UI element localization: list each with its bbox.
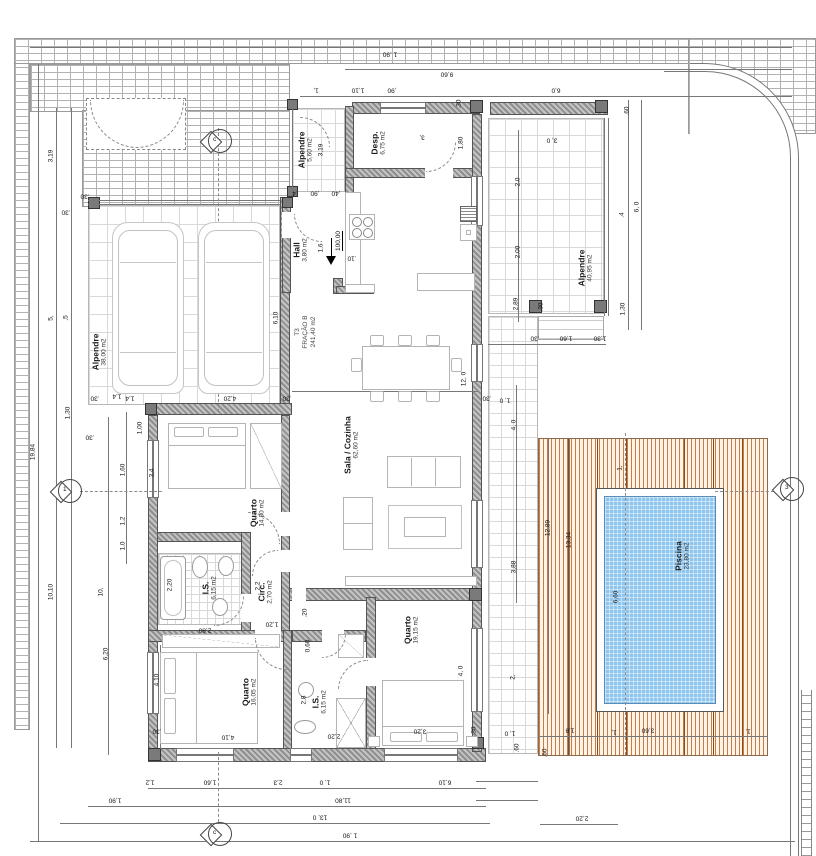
- dimension-label: .60: [514, 743, 521, 752]
- fraction-type: T3: [294, 315, 302, 348]
- dimension-label: .60: [624, 106, 631, 115]
- dimension-label: 13,34: [566, 532, 573, 548]
- room-area: 3,80 m2: [302, 238, 310, 262]
- dimension-label: 2,20: [167, 579, 174, 592]
- dimension-label: .20: [302, 608, 309, 617]
- boundary-brick-left: [14, 38, 30, 730]
- wall-pantry-bottom: [345, 168, 480, 178]
- dimension-label: 1,30: [594, 335, 607, 342]
- walkway-tiles: [488, 316, 538, 754]
- dimension-label: 1,: [617, 465, 624, 470]
- dining-chair: [426, 391, 440, 402]
- dimension-label: 0,60: [305, 640, 312, 653]
- dimension-label: 1,: [745, 728, 750, 735]
- room-name: Alpendre: [92, 334, 101, 371]
- room-name: Circ.: [258, 580, 267, 604]
- garage-open-edge: [88, 200, 280, 201]
- dimension-label: 2,20: [576, 815, 589, 822]
- dimension-label: 2,3: [273, 779, 282, 786]
- kitchen-island: [417, 273, 475, 291]
- room-label: I.S.6,15 m2: [312, 690, 329, 714]
- sofa-cushion-line: [435, 458, 436, 486]
- dimension-line: [30, 47, 792, 48]
- bed-fold-line: [196, 652, 197, 744]
- kitchen-counter-end: [345, 284, 375, 293]
- dining-chair: [370, 391, 384, 402]
- car-windshield-line: [206, 262, 262, 263]
- room-area: 2,70 m2: [267, 580, 275, 604]
- dimension-line: [641, 100, 642, 330]
- door-arc: [338, 660, 368, 690]
- section-marker-circle: [208, 822, 232, 846]
- dimension-label: 1,20: [266, 621, 279, 628]
- dimension-line: [38, 64, 39, 841]
- dimension-label: 4,20: [224, 395, 237, 402]
- room-label: Hall3,80 m2: [293, 238, 310, 262]
- dimension-label: .30: [90, 395, 99, 402]
- dimension-label: 4,10: [154, 674, 161, 687]
- dimension-label: ,90: [387, 87, 396, 94]
- boundary-hatch-right: [801, 690, 812, 856]
- section-marker: 1: [55, 479, 81, 505]
- car-rear-line: [120, 352, 176, 353]
- dimension-label: 2,0: [515, 177, 522, 186]
- room-area: 40,95 m2: [587, 250, 595, 287]
- dimension-label: 3,: [419, 134, 424, 141]
- dimension-label: 1,00: [137, 422, 144, 435]
- dining-chair: [398, 335, 412, 346]
- dimension-label: 2,20: [328, 733, 341, 740]
- dimension-label: 3,88: [511, 561, 518, 574]
- door-gap-bedroom1: [281, 512, 290, 536]
- porch-east-edge: [608, 118, 609, 316]
- room-label: Piscina23,80 m2: [675, 541, 692, 571]
- room-area: 6,15 m2: [321, 690, 329, 714]
- dimension-label: 1,2: [120, 516, 127, 525]
- dimension-label: 3, 0: [547, 137, 558, 144]
- dimension-label: 6,10: [273, 312, 280, 325]
- room-name: Quarto: [404, 616, 413, 644]
- dimension-label: 1, 0: [320, 779, 331, 786]
- room-area: 14,80 m2: [259, 499, 267, 527]
- sofa-cushion-line: [411, 458, 412, 486]
- nightstand: [368, 736, 380, 747]
- dimension-label: 2,89: [513, 298, 520, 311]
- dimension-label: ,40: [331, 190, 340, 197]
- dining-chair: [370, 335, 384, 346]
- section-marker-circle: [780, 477, 804, 501]
- stove-burner: [352, 228, 362, 238]
- fraction-label: T3 FRAÇÃO B 241,40 m2: [294, 315, 318, 348]
- sink: [192, 556, 208, 578]
- door-arc: [252, 550, 278, 576]
- room-name: Alpendre: [578, 250, 587, 287]
- window-bedroom3-south: [384, 748, 458, 762]
- dimension-line: [548, 438, 549, 714]
- dimension-label: 1,60: [560, 335, 573, 342]
- room-area: 5,60 m2: [307, 132, 315, 169]
- door-arc: [255, 638, 287, 670]
- fraction-name: FRAÇÃO B: [302, 315, 310, 348]
- dimension-line: [60, 823, 490, 824]
- section-marker-circle: [208, 129, 232, 153]
- dimension-label: 1 ,90: [383, 51, 397, 58]
- dimension-label: .30: [152, 728, 161, 735]
- kitchen-counter: [345, 192, 361, 288]
- dining-table: [362, 346, 450, 390]
- section-marker: c: [205, 129, 231, 155]
- car-windshield-line: [120, 262, 176, 263]
- dimension-label: 6,0: [551, 87, 560, 94]
- room-area: 62,60 m2: [353, 416, 361, 474]
- pillow: [426, 732, 458, 742]
- column: [594, 300, 607, 313]
- dimension-label: 1,6: [318, 243, 325, 252]
- column: [282, 197, 293, 208]
- room-label: Quarto19,15 m2: [404, 616, 421, 644]
- dimension-line: [476, 800, 538, 801]
- dimension-label: 11,80: [335, 797, 351, 804]
- room-label: Circ.2,70 m2: [258, 580, 275, 604]
- room-area: 19,15 m2: [413, 616, 421, 644]
- dining-chair: [398, 391, 412, 402]
- section-marker: c: [205, 822, 231, 848]
- dimension-label: 2,80: [199, 627, 212, 634]
- pool-water: [604, 496, 716, 704]
- fraction-area: 241,40 m2: [310, 315, 318, 348]
- dimension-label: ,90: [310, 190, 319, 197]
- dimension-line: [148, 788, 486, 789]
- tv-cabinet: [345, 576, 477, 586]
- wall-bedroom1-bottom: [148, 532, 249, 542]
- floor-plan: 100,00 T3 FRAÇÃO B 241,40 m2 1 ,909,601,…: [0, 0, 816, 856]
- dimension-label: .30: [282, 395, 291, 402]
- column: [148, 748, 161, 761]
- dimension-line: [71, 108, 72, 748]
- room-area: 16,05 m2: [251, 678, 259, 706]
- window-bath2-south: [290, 748, 312, 762]
- bed-fold-line: [168, 445, 246, 446]
- pillow: [174, 427, 204, 437]
- dimension-label: 3,20: [414, 728, 427, 735]
- dimension-label: 4, 0: [511, 420, 518, 431]
- section-marker-letter: 3: [785, 484, 789, 491]
- loveseat-cush-line: [343, 523, 373, 524]
- pool-centerline: [625, 433, 626, 755]
- dimension-label: 1,8: [565, 727, 574, 734]
- dimension-label: .4: [292, 190, 297, 197]
- dimension-label: 1, 0: [500, 397, 511, 404]
- door-gap-living: [292, 588, 306, 601]
- dimension-label: .4: [619, 212, 626, 217]
- dimension-label: .30: [530, 335, 539, 342]
- dimension-label: 2,: [510, 674, 517, 679]
- section-centerline: [80, 491, 162, 492]
- appliance-dot: [466, 230, 471, 235]
- dimension-label: 1,: [611, 729, 616, 736]
- section-marker-letter: c: [213, 136, 216, 143]
- dimension-line: [300, 96, 792, 97]
- room-label: Desp.6,75 m2: [371, 131, 388, 155]
- room-name: I.S.: [312, 690, 321, 714]
- window-living-east2: [471, 500, 483, 568]
- dimension-label: 5,: [48, 315, 55, 320]
- dimension-label: 12, 0: [461, 372, 468, 386]
- garage-open-edge: [88, 204, 280, 205]
- dimension-label: 1, 0: [505, 730, 516, 737]
- section-marker-circle: [58, 479, 82, 503]
- window-pantry: [380, 102, 426, 114]
- level-value: 100,00: [335, 231, 343, 251]
- column: [145, 403, 157, 415]
- dimension-line: [108, 417, 109, 755]
- wall-porch-small-right: [345, 106, 354, 198]
- dimension-label: 1,0: [120, 541, 127, 550]
- dimension-label: .10: [347, 255, 356, 262]
- room-name: I.S.: [202, 576, 211, 600]
- room-label: Sala / Cozinha62,60 m2: [344, 416, 361, 474]
- car-body: [204, 230, 264, 386]
- room-name: Desp.: [371, 131, 380, 155]
- door-gap-corridor: [281, 550, 290, 572]
- dimension-label: 2,00: [515, 246, 522, 259]
- dimension-label: 10,: [98, 587, 105, 596]
- room-label: I.S.6,15 m2: [202, 576, 219, 600]
- dimension-label: 3,19: [318, 144, 325, 157]
- dimension-label: 1,4: [112, 393, 121, 400]
- dimension-label: 1,60: [120, 464, 127, 477]
- living-divider-line: [292, 391, 478, 392]
- window-living-east1: [471, 344, 483, 382]
- room-label: Alpendre5,60 m2: [298, 132, 315, 169]
- dimension-line: [88, 806, 486, 807]
- room-label: Alpendre40,95 m2: [578, 250, 595, 287]
- room-label: Quarto14,80 m2: [250, 499, 267, 527]
- room-area: 23,80 m2: [684, 541, 692, 571]
- stove-burner: [363, 217, 373, 227]
- dimension-label: 12,89: [545, 520, 552, 536]
- section-centerline: [218, 752, 219, 822]
- dining-chair: [451, 358, 462, 372]
- dimension-label: 1,80: [458, 137, 465, 150]
- window-bedroom2-south: [176, 748, 234, 762]
- car-body: [118, 230, 178, 386]
- section-centerline: [715, 491, 779, 492]
- column: [595, 100, 608, 113]
- dining-chair: [351, 358, 362, 372]
- room-name: Piscina: [675, 541, 684, 571]
- dimension-label: 6,20: [103, 648, 110, 661]
- dimension-line: [628, 100, 629, 330]
- dimension-line: [569, 438, 570, 756]
- stove-burner: [363, 228, 373, 238]
- stove-burner: [352, 217, 362, 227]
- dimension-label: 13, 0: [313, 814, 327, 821]
- dining-chair: [426, 335, 440, 346]
- room-area: 38,00 m2: [101, 334, 109, 371]
- sofa: [387, 456, 461, 488]
- section-marker-letter: c: [213, 829, 216, 836]
- toilet: [218, 556, 234, 576]
- shower: [336, 698, 366, 748]
- dimension-label: .30: [482, 395, 491, 402]
- column: [469, 588, 482, 601]
- dimension-label: 1 ,90: [343, 832, 357, 839]
- nightstand: [466, 736, 478, 747]
- dimension-label: .60: [542, 748, 549, 757]
- dimension-label: 6,60: [613, 591, 620, 604]
- door-gap-hall: [282, 212, 291, 238]
- dimension-label: 6,10: [439, 779, 452, 786]
- pillow: [208, 427, 238, 437]
- dimension-label: 6, 0: [634, 202, 641, 213]
- car-rear-line: [206, 352, 262, 353]
- tall-unit: [460, 206, 477, 222]
- pillow: [164, 698, 176, 734]
- dimension-line: [488, 344, 606, 345]
- dimension-label: 2,8: [301, 695, 308, 704]
- section-marker: 3: [777, 477, 803, 503]
- dimension-line: [518, 130, 519, 322]
- dimension-line: [538, 736, 768, 737]
- room-area: 6,75 m2: [380, 131, 388, 155]
- pillow: [164, 658, 176, 694]
- column: [88, 197, 100, 209]
- toilet: [294, 720, 316, 734]
- dimension-label: 19,84: [30, 444, 37, 460]
- dimension-label: 1,60: [204, 779, 217, 786]
- room-name: Quarto: [242, 678, 251, 706]
- dimension-label: 4,10: [222, 734, 235, 741]
- boundary-brick-top: [14, 38, 690, 64]
- dimension-label: 1,30: [65, 407, 72, 420]
- dimension-label: .30: [538, 302, 545, 311]
- dimension-label: 1,90: [109, 797, 122, 804]
- dimension-line: [540, 824, 618, 825]
- dimension-label: 3,19: [48, 150, 55, 163]
- dimension-label: 9,60: [441, 71, 454, 78]
- room-name: Hall: [293, 238, 302, 262]
- room-name: Quarto: [250, 499, 259, 527]
- window-bedroom3-east: [471, 628, 483, 712]
- porch-small-edge: [292, 108, 293, 192]
- coffee-table: [404, 517, 446, 537]
- dimension-line: [30, 841, 795, 842]
- section-marker-letter: 1: [63, 486, 67, 493]
- dimension-line: [476, 781, 538, 782]
- room-label: Quarto16,05 m2: [242, 678, 259, 706]
- column: [470, 100, 483, 113]
- dimension-line: [345, 69, 792, 70]
- room-name: Sala / Cozinha: [344, 416, 353, 474]
- dimension-label: 1,2: [145, 779, 154, 786]
- room-area: 6,15 m2: [211, 576, 219, 600]
- dimension-line: [56, 108, 57, 748]
- dimension-label: 1,: [313, 87, 318, 94]
- dimension-label: 1,30: [620, 303, 627, 316]
- dimension-label: .30: [471, 726, 478, 735]
- dimension-label: 3,60: [642, 727, 655, 734]
- dimension-label: .30: [80, 193, 89, 200]
- porch-east-edge: [604, 118, 605, 316]
- level-marker-icon: [326, 256, 336, 265]
- wall-living-bottom: [286, 588, 482, 601]
- level-marker-pole: [331, 238, 332, 256]
- wall-top-porch-east: [490, 102, 608, 115]
- dimension-label: 1,4: [125, 395, 134, 402]
- room-label: Alpendre38,00 m2: [92, 334, 109, 371]
- dimension-label: .30: [61, 209, 70, 216]
- dimension-label: 10,10: [48, 584, 55, 600]
- dimension-label: .30: [456, 99, 463, 108]
- dimension-label: .30: [85, 434, 94, 441]
- wardrobe: [250, 423, 282, 489]
- dimension-label: 1,10: [352, 87, 365, 94]
- dimension-label: 3,4: [149, 468, 156, 477]
- room-name: Alpendre: [298, 132, 307, 169]
- dimension-label: ,5: [63, 315, 70, 320]
- dimension-label: 4, 0: [458, 666, 465, 677]
